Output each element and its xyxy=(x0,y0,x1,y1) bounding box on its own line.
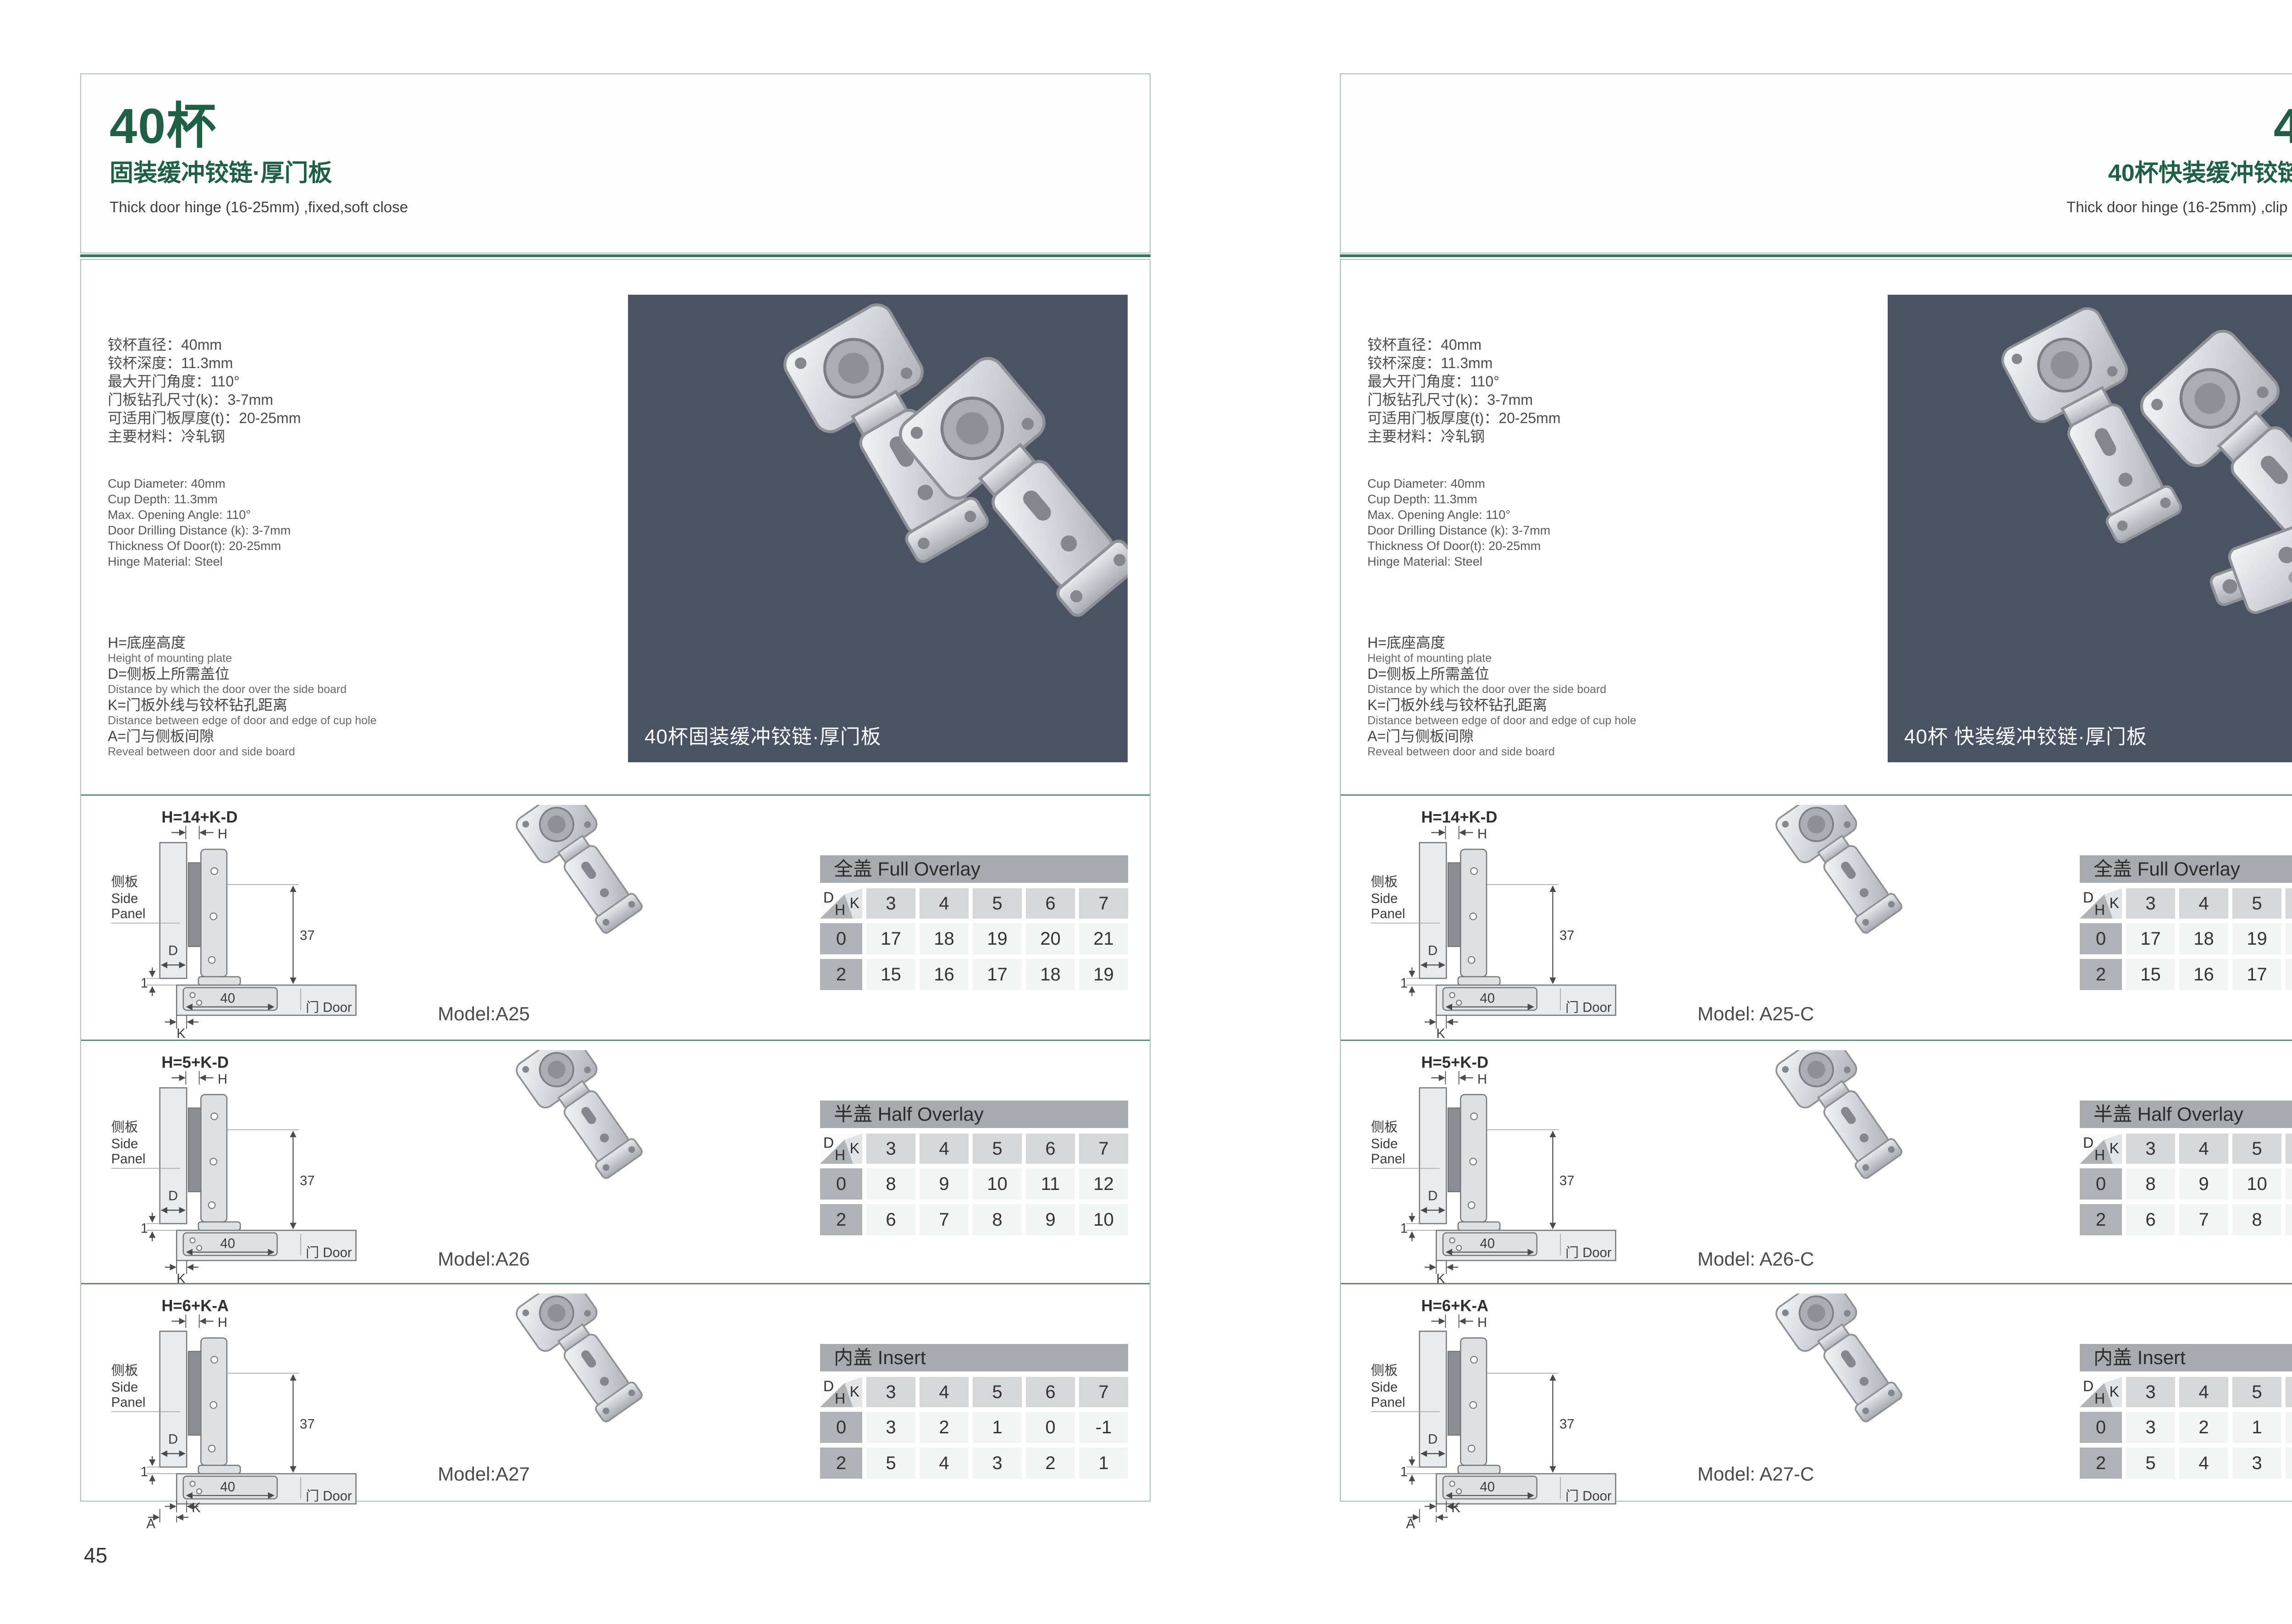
table-cell: 9 xyxy=(920,1168,969,1200)
hinge-cross-section-diagram: H=5+K-D xyxy=(1359,1049,1653,1286)
corner-k-label: K xyxy=(850,1140,859,1157)
k-header-cell: 5 xyxy=(973,1377,1022,1407)
definition-cn: K=门板外线与铰杯钻孔距离 xyxy=(108,696,621,714)
k-header-cell: 4 xyxy=(920,1134,969,1164)
definition: D=侧板上所需盖位 Distance by which the door ove… xyxy=(1367,665,1881,696)
corner-h-label: H xyxy=(2094,1147,2105,1164)
table-cell: 2 xyxy=(920,1412,969,1443)
spec-line: Cup Diameter: 40mm xyxy=(108,476,612,491)
spec-line: Cup Depth: 11.3mm xyxy=(1367,491,1872,507)
table-cell: 11 xyxy=(2286,1168,2292,1200)
k-header-cell: 3 xyxy=(866,1134,915,1164)
definition-cn: D=侧板上所需盖位 xyxy=(1367,665,1881,683)
table-cell: 1 xyxy=(2232,1412,2281,1443)
hinge-product-image xyxy=(1694,805,1941,993)
table-cell: 4 xyxy=(920,1448,969,1479)
table-grid: D K H 3 4 5 6 7 0 17 18 19 xyxy=(820,888,1128,990)
table-cell: 17 xyxy=(2126,923,2175,954)
table-grid: D K H 3 4 5 6 7 0 8 9 10 xyxy=(820,1134,1128,1235)
definition: H=底座高度 Height of mounting plate xyxy=(108,633,621,665)
definition-cn: A=门与侧板间隙 xyxy=(1367,727,1881,745)
page-subtitle: 40杯快装缓冲铰链·厚门板 xyxy=(1369,160,2292,187)
table-cell: 9 xyxy=(2286,1204,2292,1235)
k-header-cell: 6 xyxy=(1026,1134,1075,1164)
table-cell: 0 xyxy=(2286,1412,2292,1443)
table-cell: 2 xyxy=(2286,1448,2292,1479)
table-cell: 6 xyxy=(866,1204,915,1235)
k-header-cell: 4 xyxy=(920,1377,969,1407)
table-cell: 2 xyxy=(1026,1448,1075,1479)
page-46: 40杯 40杯快装缓冲铰链·厚门板 Thick door hinge (16-2… xyxy=(1340,73,2292,1502)
page-subtitle-en: Thick door hinge (16-25mm) ,fixed,soft c… xyxy=(110,198,1121,216)
definition-cn: A=门与侧板间隙 xyxy=(108,727,621,745)
k-header-cell: 7 xyxy=(1079,1134,1128,1164)
page-header: 40杯 40杯快装缓冲铰链·厚门板 Thick door hinge (16-2… xyxy=(1340,73,2292,253)
hinge-product-image xyxy=(1694,1294,1941,1481)
k-header-cell: 4 xyxy=(920,888,969,919)
spec-block: 铰杯直径：40mm 铰杯深度：11.3mm 最大开门角度：110° 门板钻孔尺寸… xyxy=(108,336,612,569)
definition-en: Reveal between door and side board xyxy=(1367,745,1881,758)
corner-d-label: D xyxy=(2083,1134,2094,1151)
definition-cn: H=底座高度 xyxy=(1367,633,1881,652)
diagram-formula: H=14+K-D xyxy=(161,809,237,826)
half-overlay-table: 半盖 Half Overlay D K H 3 4 5 xyxy=(2080,1101,2292,1235)
definition: A=门与侧板间隙 Reveal between door and side bo… xyxy=(108,727,621,758)
table-cell: 17 xyxy=(866,923,915,954)
full-overlay-table: 全盖 Full Overlay D K H 3 4 5 xyxy=(2080,855,2292,990)
spec-line: Door Drilling Distance (k): 3-7mm xyxy=(1367,523,1872,538)
photo-caption: 40杯 快装缓冲铰链·厚门板 xyxy=(1904,720,2147,749)
table-cell: 20 xyxy=(1026,923,1075,954)
hinge-photo-illustration xyxy=(1888,295,2292,762)
spec-line: Thickness Of Door(t): 20-25mm xyxy=(1367,538,1872,554)
table-corner-cell: D K H xyxy=(820,888,862,919)
product-photo: 40杯固装缓冲铰链·厚门板 xyxy=(628,295,1128,762)
table-cell: 15 xyxy=(2126,959,2175,990)
table-cell: 19 xyxy=(2232,923,2281,954)
table-grid: D K H 3 4 5 6 7 0 3 2 1 xyxy=(820,1377,1128,1479)
table-cell: 8 xyxy=(866,1168,915,1200)
h-header-cell: 0 xyxy=(2080,1168,2122,1200)
table-title: 全盖 Full Overlay xyxy=(2080,855,2292,883)
k-header-cell: 6 xyxy=(2286,1134,2292,1164)
spec-list-cn: 铰杯直径：40mm 铰杯深度：11.3mm 最大开门角度：110° 门板钻孔尺寸… xyxy=(108,336,612,446)
k-header-cell: 4 xyxy=(2179,1377,2228,1407)
k-header-cell: 5 xyxy=(2232,1134,2281,1164)
definition-en: Reveal between door and side board xyxy=(108,745,621,758)
table-cell: 9 xyxy=(2179,1168,2228,1200)
half-overlay-table: 半盖 Half Overlay D K H 3 4 5 xyxy=(820,1101,1128,1235)
table-cell: 16 xyxy=(920,959,969,990)
table-corner-cell: D K H xyxy=(820,1134,862,1164)
table-grid: D K H 3 4 5 6 7 0 17 18 19 xyxy=(2080,888,2292,990)
model-row-a26: H=5+K-D Model:A26 半盖 Half Overlay D xyxy=(81,1040,1150,1283)
spec-line: Hinge Material: Steel xyxy=(108,554,612,569)
h-header-cell: 0 xyxy=(2080,1412,2122,1443)
spec-line: Door Drilling Distance (k): 3-7mm xyxy=(108,523,612,538)
table-cell: 3 xyxy=(2232,1448,2281,1479)
diagram-formula: H=14+K-D xyxy=(1421,809,1497,826)
table-cell: 1 xyxy=(973,1412,1022,1443)
hinge-cross-section-diagram: H=6+K-A xyxy=(1359,1293,1653,1529)
header-divider xyxy=(1340,254,2292,257)
h-header-cell: 0 xyxy=(820,923,862,954)
corner-d-label: D xyxy=(2083,1378,2094,1395)
table-cell: -1 xyxy=(1079,1412,1128,1443)
hinge-product-image xyxy=(434,1294,682,1481)
table-cell: 7 xyxy=(920,1204,969,1235)
corner-k-label: K xyxy=(850,895,859,912)
header-divider xyxy=(80,254,1151,257)
h-header-cell: 0 xyxy=(2080,923,2122,954)
corner-k-label: K xyxy=(2110,895,2119,912)
page-content: 铰杯直径：40mm 铰杯深度：11.3mm 最大开门角度：110° 门板钻孔尺寸… xyxy=(1340,259,2292,1502)
model-rows: H=14+K-D Model:A25 全盖 Full Overlay D xyxy=(81,794,1150,1503)
k-header-cell: 5 xyxy=(973,1134,1022,1164)
h-header-cell: 2 xyxy=(820,959,862,990)
spec-line: 主要材料：冷轧钢 xyxy=(108,427,612,446)
definition-cn: D=侧板上所需盖位 xyxy=(108,665,621,683)
corner-h-label: H xyxy=(2094,1390,2105,1407)
table-cell: 5 xyxy=(2126,1448,2175,1479)
k-header-cell: 6 xyxy=(2286,888,2292,919)
spec-line: Hinge Material: Steel xyxy=(1367,554,1872,569)
table-cell: 10 xyxy=(973,1168,1022,1200)
corner-k-label: K xyxy=(850,1383,859,1400)
definition: H=底座高度 Height of mounting plate xyxy=(1367,633,1881,665)
table-title: 内盖 Insert xyxy=(2080,1344,2292,1371)
table-title: 内盖 Insert xyxy=(820,1344,1128,1371)
definition-en: Height of mounting plate xyxy=(108,652,621,665)
table-cell: 6 xyxy=(2126,1204,2175,1235)
definition-en: Distance between edge of door and edge o… xyxy=(1367,714,1881,727)
page-title: 40杯 xyxy=(110,99,1121,153)
hinge-cross-section-diagram: H=14+K-D xyxy=(99,804,393,1040)
model-label: Model:A26 xyxy=(438,1248,530,1270)
spec-line: 最大开门角度：110° xyxy=(1367,372,1872,391)
table-corner-cell: D K H xyxy=(2080,1377,2122,1407)
model-rows: H=14+K-D Model: A25-C 全盖 Full Overlay D xyxy=(1341,794,2292,1503)
page-subtitle: 固装缓冲铰链·厚门板 xyxy=(110,160,1121,187)
corner-k-label: K xyxy=(2110,1140,2119,1157)
corner-k-label: K xyxy=(2110,1383,2119,1400)
k-header-cell: 6 xyxy=(2286,1377,2292,1407)
insert-table: 内盖 Insert D K H 3 4 5 xyxy=(820,1344,1128,1479)
k-header-cell: 5 xyxy=(2232,1377,2281,1407)
table-cell: 8 xyxy=(973,1204,1022,1235)
corner-h-label: H xyxy=(835,1390,845,1407)
full-overlay-table: 全盖 Full Overlay D K H 3 4 5 xyxy=(820,855,1128,990)
spec-line: 可适用门板厚度(t)：20-25mm xyxy=(108,409,612,427)
definition-en: Distance by which the door over the side… xyxy=(1367,683,1881,696)
table-cell: 19 xyxy=(973,923,1022,954)
k-header-cell: 3 xyxy=(2126,888,2175,919)
h-header-cell: 2 xyxy=(2080,1448,2122,1479)
h-header-cell: 2 xyxy=(2080,959,2122,990)
corner-d-label: D xyxy=(823,1378,834,1395)
catalog-spread: 40杯 固装缓冲铰链·厚门板 Thick door hinge (16-25mm… xyxy=(0,0,2292,1624)
spec-line: 最大开门角度：110° xyxy=(108,372,612,391)
table-cell: 15 xyxy=(866,959,915,990)
table-cell: 16 xyxy=(2179,959,2228,990)
page-45: 40杯 固装缓冲铰链·厚门板 Thick door hinge (16-25mm… xyxy=(80,73,1151,1502)
table-cell: 18 xyxy=(920,923,969,954)
h-header-cell: 0 xyxy=(820,1168,862,1200)
table-cell: 3 xyxy=(866,1412,915,1443)
hinge-product-image xyxy=(434,1050,682,1238)
hinge-product-image xyxy=(1694,1050,1941,1238)
table-cell: 12 xyxy=(1079,1168,1128,1200)
spec-line: 门板钻孔尺寸(k)：3-7mm xyxy=(108,391,612,409)
table-corner-cell: D K H xyxy=(2080,888,2122,919)
spec-line: 铰杯直径：40mm xyxy=(1367,336,1872,354)
page-title: 40杯 xyxy=(1369,99,2292,153)
table-cell: 1 xyxy=(1079,1448,1128,1479)
model-row-a25c: H=14+K-D Model: A25-C 全盖 Full Overlay D xyxy=(1341,794,2292,1040)
k-header-cell: 6 xyxy=(1026,888,1075,919)
hinge-cross-section-diagram: H=14+K-D xyxy=(1359,804,1653,1040)
definition-cn: K=门板外线与铰杯钻孔距离 xyxy=(1367,696,1881,714)
table-cell: 10 xyxy=(1079,1204,1128,1235)
k-header-cell: 5 xyxy=(2232,888,2281,919)
table-cell: 7 xyxy=(2179,1204,2228,1235)
k-header-cell: 3 xyxy=(866,1377,915,1407)
table-cell: 3 xyxy=(2126,1412,2175,1443)
k-header-cell: 4 xyxy=(2179,1134,2228,1164)
model-label: Model: A27-C xyxy=(1697,1463,1814,1485)
spec-line: Thickness Of Door(t): 20-25mm xyxy=(108,538,612,554)
k-header-cell: 4 xyxy=(2179,888,2228,919)
spec-line: Max. Opening Angle: 110° xyxy=(1367,507,1872,523)
spec-line: Max. Opening Angle: 110° xyxy=(108,507,612,523)
corner-d-label: D xyxy=(823,1134,834,1151)
diagram-formula: H=5+K-D xyxy=(1421,1054,1488,1071)
spec-line: Cup Diameter: 40mm xyxy=(1367,476,1872,491)
definition: D=侧板上所需盖位 Distance by which the door ove… xyxy=(108,665,621,696)
corner-h-label: H xyxy=(835,902,845,919)
table-cell: 3 xyxy=(973,1448,1022,1479)
table-grid: D K H 3 4 5 6 7 0 3 2 1 xyxy=(2080,1377,2292,1479)
spec-list-cn: 铰杯直径：40mm 铰杯深度：11.3mm 最大开门角度：110° 门板钻孔尺寸… xyxy=(1367,336,1872,446)
table-title: 半盖 Half Overlay xyxy=(820,1101,1128,1128)
definition: K=门板外线与铰杯钻孔距离 Distance between edge of d… xyxy=(1367,696,1881,727)
table-cell: 10 xyxy=(2232,1168,2281,1200)
table-title: 全盖 Full Overlay xyxy=(820,855,1128,883)
table-cell: 8 xyxy=(2232,1204,2281,1235)
definition-block: H=底座高度 Height of mounting plate D=侧板上所需盖… xyxy=(1367,633,1881,758)
corner-d-label: D xyxy=(2083,889,2094,906)
k-header-cell: 7 xyxy=(1079,888,1128,919)
table-grid: D K H 3 4 5 6 7 0 8 9 10 xyxy=(2080,1134,2292,1235)
h-header-cell: 2 xyxy=(820,1204,862,1235)
hinge-product-image xyxy=(434,805,682,993)
k-header-cell: 3 xyxy=(2126,1377,2175,1407)
h-header-cell: 2 xyxy=(820,1448,862,1479)
table-corner-cell: D K H xyxy=(2080,1134,2122,1164)
corner-h-label: H xyxy=(835,1147,845,1164)
table-cell: 0 xyxy=(1026,1412,1075,1443)
table-cell: 18 xyxy=(2286,959,2292,990)
model-label: Model:A25 xyxy=(438,1003,530,1025)
table-cell: 2 xyxy=(2179,1412,2228,1443)
page-header: 40杯 固装缓冲铰链·厚门板 Thick door hinge (16-25mm… xyxy=(80,73,1151,253)
spec-line: 可适用门板厚度(t)：20-25mm xyxy=(1367,409,1872,427)
table-cell: 20 xyxy=(2286,923,2292,954)
spec-line: 铰杯深度：11.3mm xyxy=(108,354,612,372)
model-label: Model: A26-C xyxy=(1697,1248,1814,1270)
table-cell: 17 xyxy=(973,959,1022,990)
definition-en: Distance by which the door over the side… xyxy=(108,683,621,696)
spec-line: Cup Depth: 11.3mm xyxy=(108,491,612,507)
table-cell: 11 xyxy=(1026,1168,1075,1200)
table-cell: 21 xyxy=(1079,923,1128,954)
photo-caption: 40杯固装缓冲铰链·厚门板 xyxy=(645,720,882,749)
diagram-formula: H=6+K-A xyxy=(161,1297,229,1315)
page-subtitle-en: Thick door hinge (16-25mm) ,clip on ,sof… xyxy=(1369,198,2292,216)
model-row-a25: H=14+K-D Model:A25 全盖 Full Overlay D xyxy=(81,794,1150,1040)
model-label: Model: A25-C xyxy=(1697,1003,1814,1025)
model-row-a26c: H=5+K-D Model: A26-C 半盖 Half Overlay D xyxy=(1341,1040,2292,1283)
definition: K=门板外线与铰杯钻孔距离 Distance between edge of d… xyxy=(108,696,621,727)
definition-cn: H=底座高度 xyxy=(108,633,621,652)
model-row-a27: H=6+K-A Model:A27 内盖 Insert D xyxy=(81,1283,1150,1503)
table-cell: 8 xyxy=(2126,1168,2175,1200)
table-cell: 17 xyxy=(2232,959,2281,990)
spec-list-en: Cup Diameter: 40mm Cup Depth: 11.3mm Max… xyxy=(1367,476,1872,569)
corner-d-label: D xyxy=(823,889,834,906)
definition-block: H=底座高度 Height of mounting plate D=侧板上所需盖… xyxy=(108,633,621,758)
spec-line: 主要材料：冷轧钢 xyxy=(1367,427,1872,446)
page-content: 铰杯直径：40mm 铰杯深度：11.3mm 最大开门角度：110° 门板钻孔尺寸… xyxy=(80,259,1151,1502)
spec-line: 铰杯深度：11.3mm xyxy=(1367,354,1872,372)
spec-line: 铰杯直径：40mm xyxy=(108,336,612,354)
table-title: 半盖 Half Overlay xyxy=(2080,1101,2292,1128)
hinge-cross-section-diagram: H=6+K-A xyxy=(99,1293,393,1529)
k-header-cell: 7 xyxy=(1079,1377,1128,1407)
table-cell: 9 xyxy=(1026,1204,1075,1235)
spec-line: 门板钻孔尺寸(k)：3-7mm xyxy=(1367,391,1872,409)
table-cell: 5 xyxy=(866,1448,915,1479)
model-label: Model:A27 xyxy=(438,1463,530,1485)
h-header-cell: 0 xyxy=(820,1412,862,1443)
h-header-cell: 2 xyxy=(2080,1204,2122,1235)
k-header-cell: 3 xyxy=(866,888,915,919)
table-cell: 19 xyxy=(1079,959,1128,990)
diagram-formula: H=6+K-A xyxy=(1421,1297,1488,1315)
table-cell: 18 xyxy=(2179,923,2228,954)
table-cell: 18 xyxy=(1026,959,1075,990)
insert-table: 内盖 Insert D K H 3 4 5 xyxy=(2080,1344,2292,1479)
definition: A=门与侧板间隙 Reveal between door and side bo… xyxy=(1367,727,1881,758)
page-number-left: 45 xyxy=(84,1543,107,1568)
hinge-cross-section-diagram: H=5+K-D xyxy=(99,1049,393,1286)
table-cell: 4 xyxy=(2179,1448,2228,1479)
spec-block: 铰杯直径：40mm 铰杯深度：11.3mm 最大开门角度：110° 门板钻孔尺寸… xyxy=(1367,336,1872,569)
k-header-cell: 5 xyxy=(973,888,1022,919)
corner-h-label: H xyxy=(2094,902,2105,919)
definition-en: Height of mounting plate xyxy=(1367,652,1881,665)
spec-list-en: Cup Diameter: 40mm Cup Depth: 11.3mm Max… xyxy=(108,476,612,569)
model-row-a27c: H=6+K-A Model: A27-C 内盖 Insert D xyxy=(1341,1283,2292,1503)
table-corner-cell: D K H xyxy=(820,1377,862,1407)
product-photo: 40杯 快装缓冲铰链·厚门板 xyxy=(1888,295,2292,762)
k-header-cell: 6 xyxy=(1026,1377,1075,1407)
diagram-formula: H=5+K-D xyxy=(161,1054,229,1071)
definition-en: Distance between edge of door and edge o… xyxy=(108,714,621,727)
hinge-photo-illustration xyxy=(628,295,1128,762)
k-header-cell: 3 xyxy=(2126,1134,2175,1164)
